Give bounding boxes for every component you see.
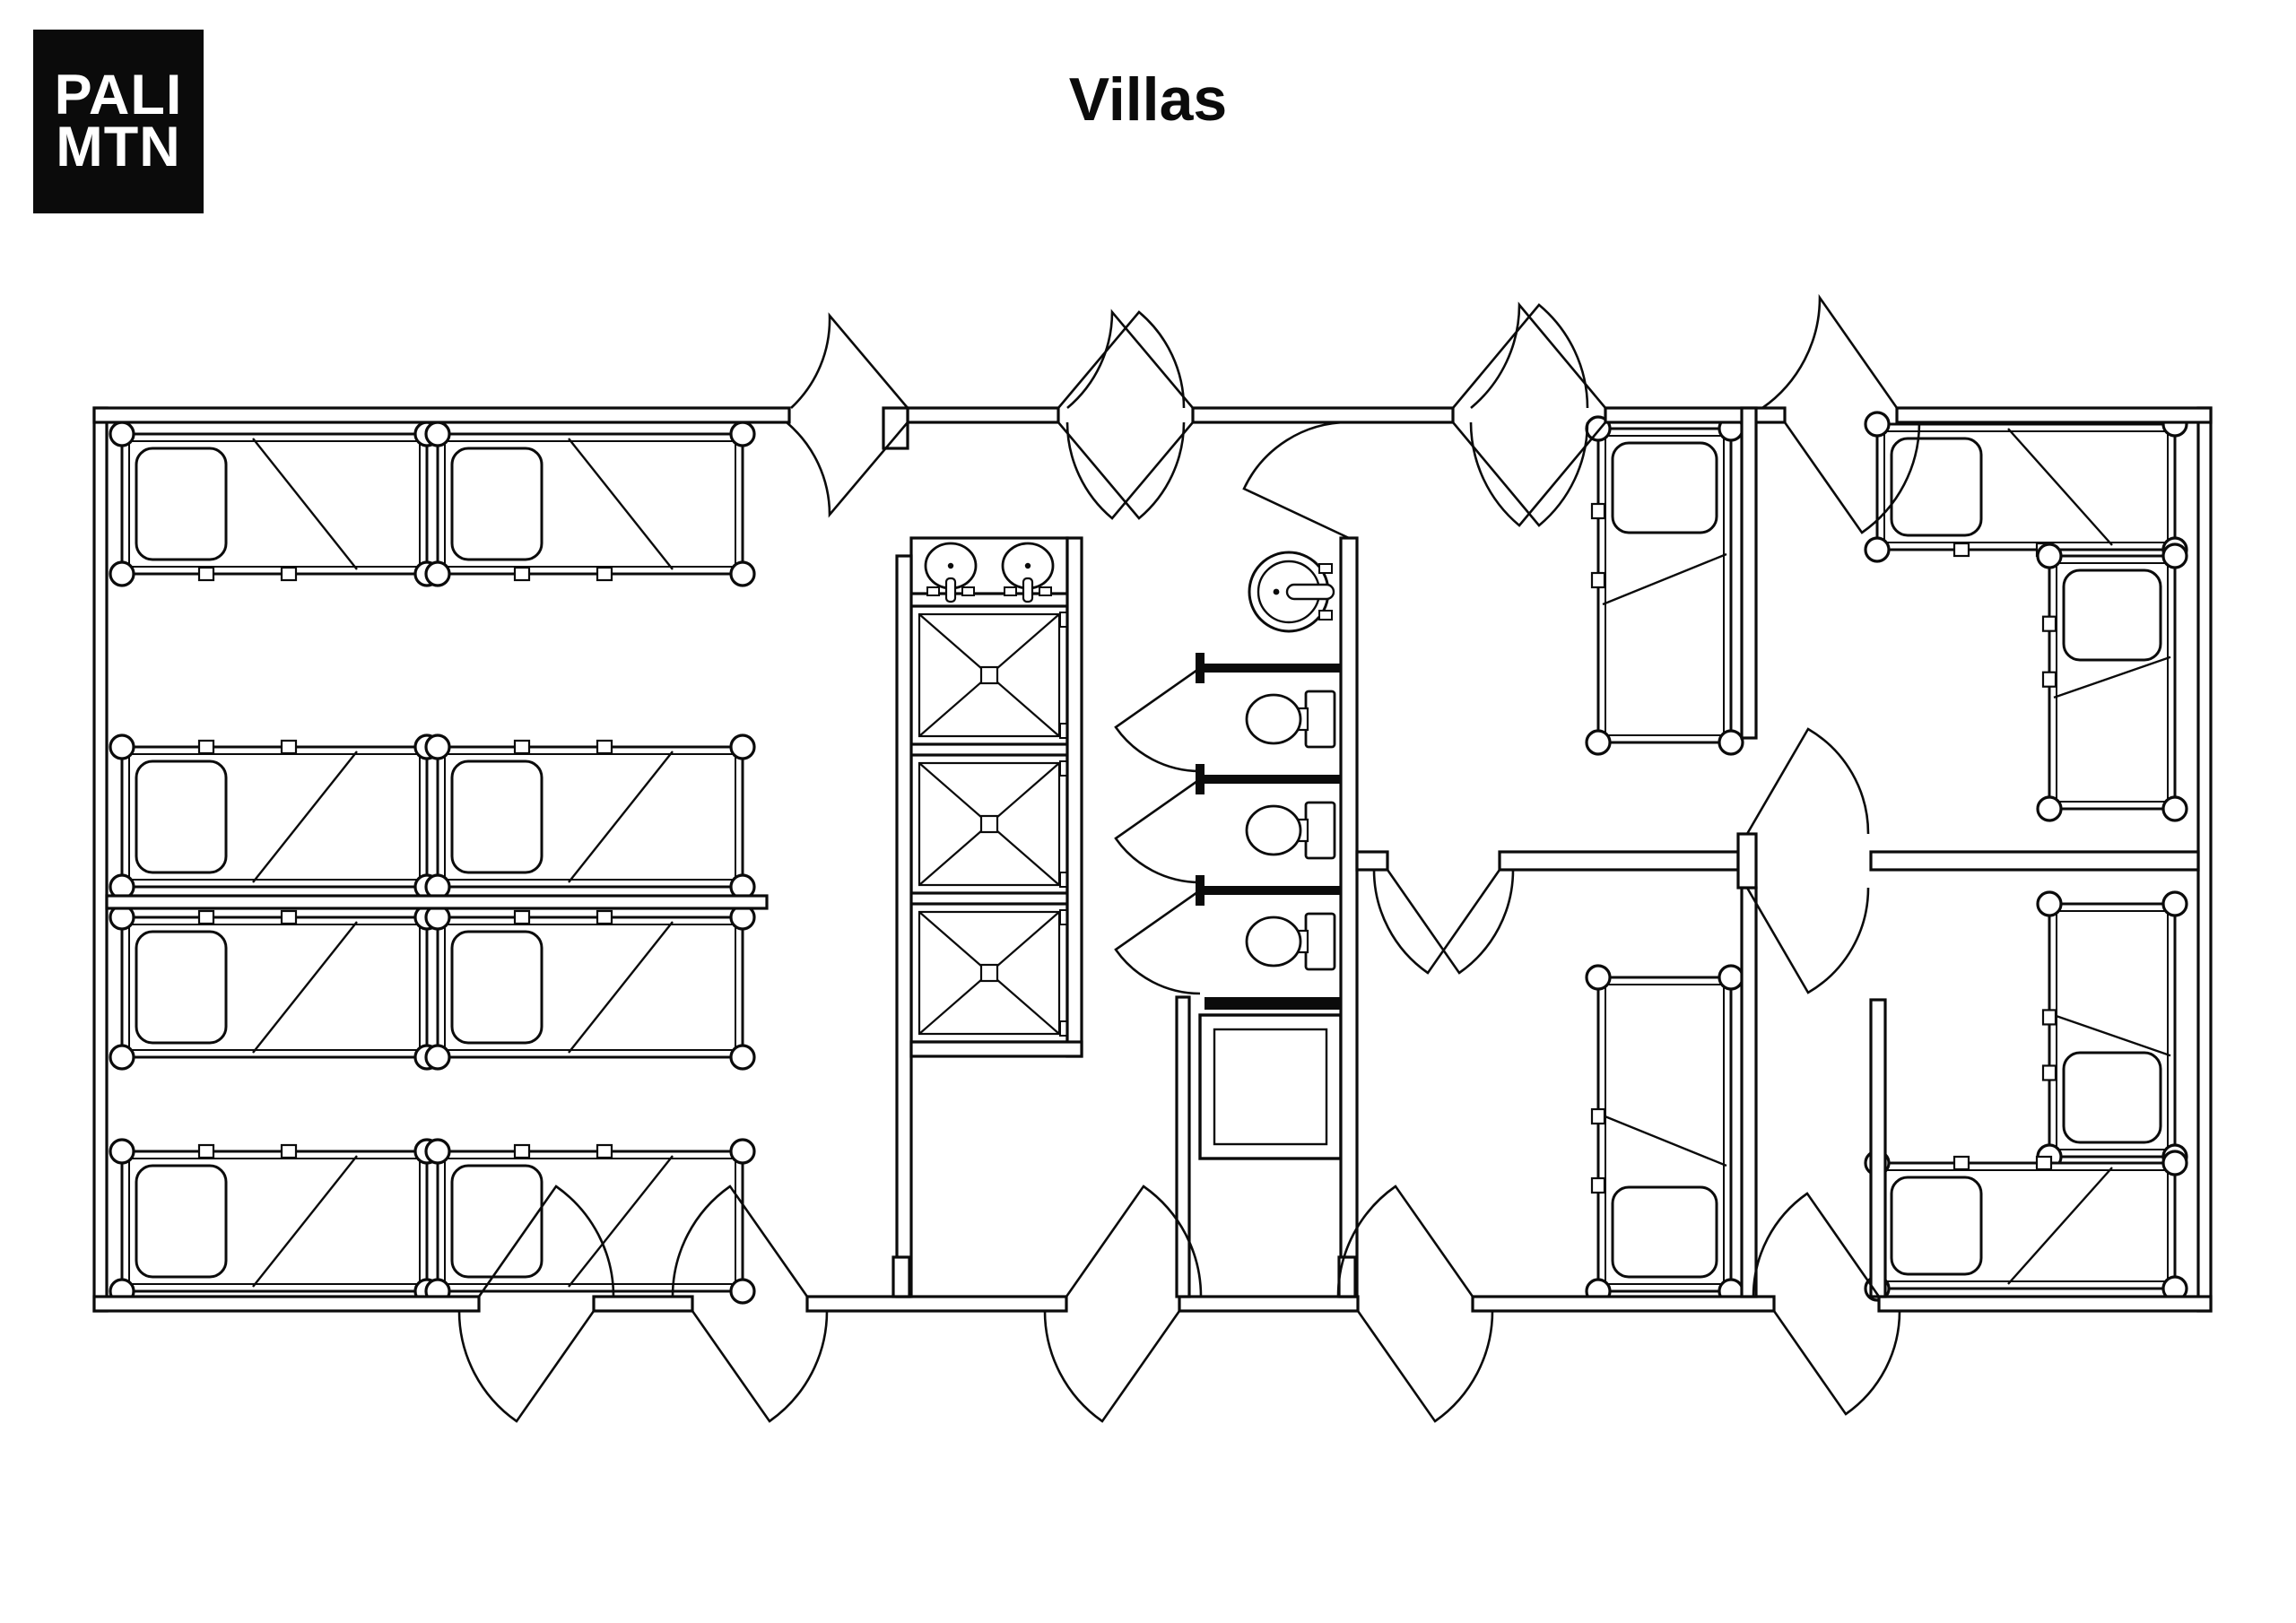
bed-post <box>110 562 134 586</box>
bed-post <box>426 422 449 446</box>
door-swing <box>1774 1311 1900 1414</box>
door-swing <box>1453 305 1587 408</box>
shower-drain <box>981 667 997 683</box>
pillow <box>136 1166 226 1277</box>
bed-post <box>1587 731 1610 754</box>
bed-tab <box>282 911 296 924</box>
toilet-bowl <box>1247 917 1300 966</box>
bed-post <box>2038 892 2061 916</box>
bed-post <box>426 1140 449 1163</box>
bed <box>1587 417 1743 754</box>
pillow <box>136 932 226 1043</box>
wall <box>1179 1297 1358 1311</box>
counter-sink <box>926 543 976 602</box>
bed-post <box>426 735 449 759</box>
sink-drain <box>1025 563 1031 568</box>
bed-post <box>1719 731 1743 754</box>
door-swing <box>1116 779 1200 882</box>
door-swing <box>1358 1311 1492 1421</box>
shower-stall <box>911 606 1068 744</box>
shower-drain <box>981 816 997 832</box>
door-swing <box>1453 422 1587 525</box>
bed-post <box>1587 966 1610 989</box>
wall <box>1879 1297 2211 1311</box>
door-swing <box>1058 312 1184 408</box>
faucet-spout <box>946 578 955 602</box>
bed-tab <box>199 741 213 753</box>
wall <box>94 408 789 422</box>
wall <box>911 1042 1082 1056</box>
door-swing <box>1116 890 1200 994</box>
pillow <box>136 448 226 560</box>
wall <box>1742 408 1756 738</box>
bed <box>426 906 754 1069</box>
bed-tab <box>1592 1178 1605 1193</box>
faucet-handle <box>1319 611 1332 620</box>
wall <box>893 1257 909 1297</box>
bed-post <box>2163 797 2187 820</box>
door-swing <box>1045 1311 1179 1421</box>
wall <box>2198 408 2211 1311</box>
bed-post <box>731 1046 754 1069</box>
bed-post <box>2163 892 2187 916</box>
wall <box>1473 1297 1774 1311</box>
bed-post <box>731 1280 754 1303</box>
wall <box>1067 538 1082 1056</box>
door-swing <box>1747 888 1868 993</box>
bed <box>426 422 754 586</box>
door-swing <box>1753 1193 1879 1297</box>
bed-tab <box>1954 543 1969 556</box>
bed <box>2038 892 2187 1168</box>
bed-post <box>1865 412 1889 436</box>
bed-post <box>110 1046 134 1069</box>
bed-tab <box>597 1145 612 1158</box>
bed-tab <box>282 568 296 580</box>
bed-post <box>731 1140 754 1163</box>
toilet-bowl <box>1247 695 1300 743</box>
bed-tab <box>597 741 612 753</box>
floor-plan <box>0 0 2296 1623</box>
wall <box>107 896 767 908</box>
bed-tab <box>515 1145 529 1158</box>
bed <box>426 735 754 898</box>
bed-post <box>110 1140 134 1163</box>
bed-tab <box>1954 1157 1969 1169</box>
faucet-spout <box>1287 585 1334 599</box>
bed-post <box>426 1046 449 1069</box>
bed-post <box>1865 538 1889 561</box>
bed-post <box>2038 544 2061 568</box>
closet-outer <box>1200 1015 1341 1159</box>
pillow <box>1613 443 1717 533</box>
bed-tab <box>282 1145 296 1158</box>
wall <box>1742 888 1756 1297</box>
counter-sink <box>1003 543 1053 602</box>
pillow <box>452 932 542 1043</box>
bed-tab <box>282 741 296 753</box>
wall <box>1738 834 1756 888</box>
toilet-tank <box>1306 914 1335 969</box>
pillow <box>452 761 542 872</box>
toilet-tank <box>1306 691 1335 747</box>
bed-post <box>1719 966 1743 989</box>
faucet-handle <box>1039 587 1051 595</box>
pillow <box>1892 438 1981 535</box>
door-swing <box>1471 305 1605 408</box>
door-swing <box>1244 422 1349 538</box>
bed-post <box>731 422 754 446</box>
bed-post <box>2163 1151 2187 1175</box>
bed-post <box>731 735 754 759</box>
bed-post <box>2163 544 2187 568</box>
bed-post <box>426 562 449 586</box>
round-sink <box>1249 552 1334 631</box>
door-swing <box>692 1311 827 1421</box>
pillow <box>2064 1053 2161 1142</box>
stall-partition <box>1205 775 1341 784</box>
stall-partition <box>1205 664 1341 673</box>
pillow <box>136 761 226 872</box>
faucet-handle <box>927 587 939 595</box>
stall-partition <box>1205 886 1341 895</box>
bed <box>2038 544 2187 820</box>
bed-post <box>110 422 134 446</box>
shower-stall <box>911 755 1068 893</box>
bed-tab <box>2037 1157 2051 1169</box>
bed <box>110 1140 439 1303</box>
bed <box>110 735 439 898</box>
bed-tab <box>199 911 213 924</box>
door-swing <box>1762 298 1897 408</box>
bed-tab <box>1592 504 1605 518</box>
bed-tab <box>1592 573 1605 587</box>
bed <box>110 906 439 1069</box>
pillow <box>1892 1177 1981 1274</box>
faucet-handle <box>1004 587 1016 595</box>
wall <box>594 1297 692 1311</box>
door-swing <box>1374 870 1500 973</box>
faucet-handle <box>1319 564 1332 573</box>
wall <box>94 408 107 1311</box>
shower-drain <box>981 965 997 981</box>
toilet <box>1247 691 1335 747</box>
bed-tab <box>597 911 612 924</box>
wall <box>1357 852 1387 870</box>
wall <box>897 556 911 1297</box>
wall <box>1871 852 2198 870</box>
bed-tab <box>515 911 529 924</box>
toilet-bowl <box>1247 806 1300 855</box>
pillow <box>452 1166 542 1277</box>
pillow <box>452 448 542 560</box>
bed <box>1587 966 1743 1303</box>
bed-tab <box>2043 617 2056 631</box>
stall-partition <box>1205 997 1341 1010</box>
bed-tab <box>2043 1065 2056 1080</box>
bed-tab <box>199 1145 213 1158</box>
bed-tab <box>515 568 529 580</box>
bed <box>1865 1151 2187 1300</box>
door-swing <box>1471 422 1605 525</box>
wall <box>1341 538 1357 1297</box>
bed-tab <box>199 568 213 580</box>
pillow <box>2064 570 2161 660</box>
wall <box>908 408 1058 422</box>
toilet-tank <box>1306 803 1335 858</box>
faucet-handle <box>962 587 974 595</box>
wall <box>1897 408 2211 422</box>
wall <box>94 1297 479 1311</box>
shower-stall <box>911 904 1068 1042</box>
door-swing <box>791 316 908 408</box>
bed-tab <box>2043 1010 2056 1024</box>
wall <box>1871 1000 1885 1297</box>
toilet <box>1247 803 1335 858</box>
wall <box>1193 408 1453 422</box>
bed-post <box>731 562 754 586</box>
door-swing <box>1387 870 1513 973</box>
door-swing <box>459 1311 594 1421</box>
bed-tab <box>2043 673 2056 687</box>
bed <box>110 422 439 586</box>
sink-drain <box>1274 589 1280 595</box>
faucet-spout <box>1023 578 1032 602</box>
door-swing <box>1747 729 1868 834</box>
bed <box>1865 412 2187 561</box>
bed-tab <box>597 568 612 580</box>
door-swing <box>1116 668 1200 771</box>
bed-tab <box>1592 1109 1605 1124</box>
bed-post <box>110 735 134 759</box>
wall <box>807 1297 1066 1311</box>
wall <box>1500 852 1738 870</box>
wall <box>1177 997 1189 1297</box>
wall <box>1605 408 1785 422</box>
toilet <box>1247 914 1335 969</box>
bed-post <box>2038 797 2061 820</box>
sink-drain <box>948 563 953 568</box>
bed-tab <box>515 741 529 753</box>
pillow <box>1613 1187 1717 1277</box>
